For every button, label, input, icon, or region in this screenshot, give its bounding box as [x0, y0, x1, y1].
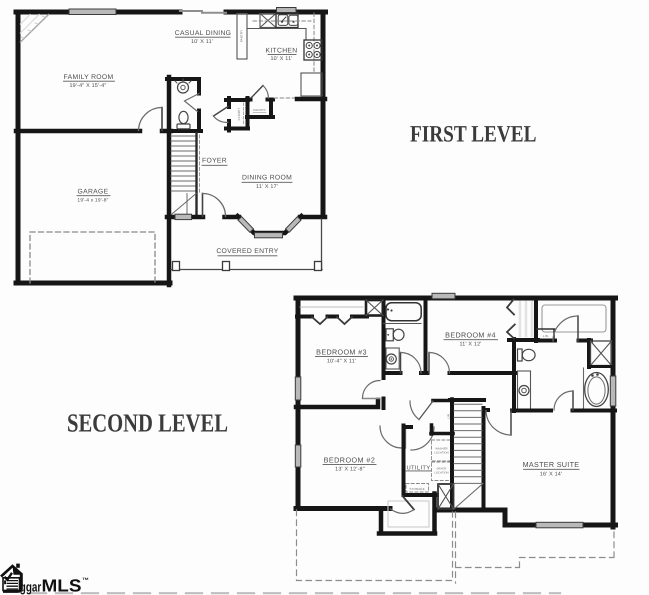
svg-text:CASUAL DINING: CASUAL DINING	[175, 30, 232, 37]
svg-text:MLS: MLS	[42, 576, 82, 595]
svg-text:11' X 17': 11' X 17'	[256, 184, 278, 190]
svg-text:10'-4" X 11': 10'-4" X 11'	[327, 358, 356, 364]
svg-text:STORAGE: STORAGE	[410, 487, 425, 491]
svg-text:GARAGE: GARAGE	[78, 188, 109, 195]
svg-text:10' X 11': 10' X 11'	[270, 56, 292, 62]
svg-text:LOCATION: LOCATION	[434, 472, 448, 475]
svg-text:19'-4 x 19'-8": 19'-4 x 19'-8"	[77, 197, 108, 203]
svg-text:CLOSET: CLOSET	[237, 108, 241, 121]
svg-text:BEDROOM #4: BEDROOM #4	[445, 331, 496, 340]
svg-text:DRYER: DRYER	[437, 468, 447, 471]
svg-text:LIN.: LIN.	[543, 334, 549, 338]
svg-text:ggar: ggar	[20, 580, 42, 595]
svg-text:10' X 11': 10' X 11'	[191, 39, 213, 45]
svg-text:WASHER: WASHER	[435, 448, 447, 451]
svg-text:UTILITY: UTILITY	[406, 464, 430, 471]
svg-text:LIN.: LIN.	[447, 413, 451, 419]
svg-text:KITCHEN: KITCHEN	[266, 48, 298, 55]
svg-text:™: ™	[82, 578, 89, 585]
svg-text:MASTER SUITE: MASTER SUITE	[523, 460, 580, 469]
svg-text:13' X 12'-8": 13' X 12'-8"	[335, 467, 365, 473]
svg-text:COVERED ENTRY: COVERED ENTRY	[216, 248, 278, 255]
svg-text:BEDROOM #3: BEDROOM #3	[316, 347, 367, 356]
svg-text:19'-4" X 15'-4": 19'-4" X 15'-4"	[69, 83, 106, 89]
svg-text:11' X 12': 11' X 12'	[459, 342, 481, 348]
svg-text:FOYER: FOYER	[202, 158, 227, 165]
svg-text:16' X 14': 16' X 14'	[540, 471, 562, 477]
svg-text:FAMILY ROOM: FAMILY ROOM	[64, 74, 114, 81]
svg-text:BEDROOM #2: BEDROOM #2	[324, 455, 376, 464]
svg-text:LOCATION: LOCATION	[434, 452, 448, 455]
svg-text:PANTRY: PANTRY	[240, 30, 244, 43]
svg-text:FIRST LEVEL: FIRST LEVEL	[410, 122, 537, 148]
svg-text:DINING ROOM: DINING ROOM	[242, 175, 292, 182]
svg-text:PANTRY: PANTRY	[253, 108, 266, 112]
svg-text:SECOND LEVEL: SECOND LEVEL	[67, 409, 228, 438]
